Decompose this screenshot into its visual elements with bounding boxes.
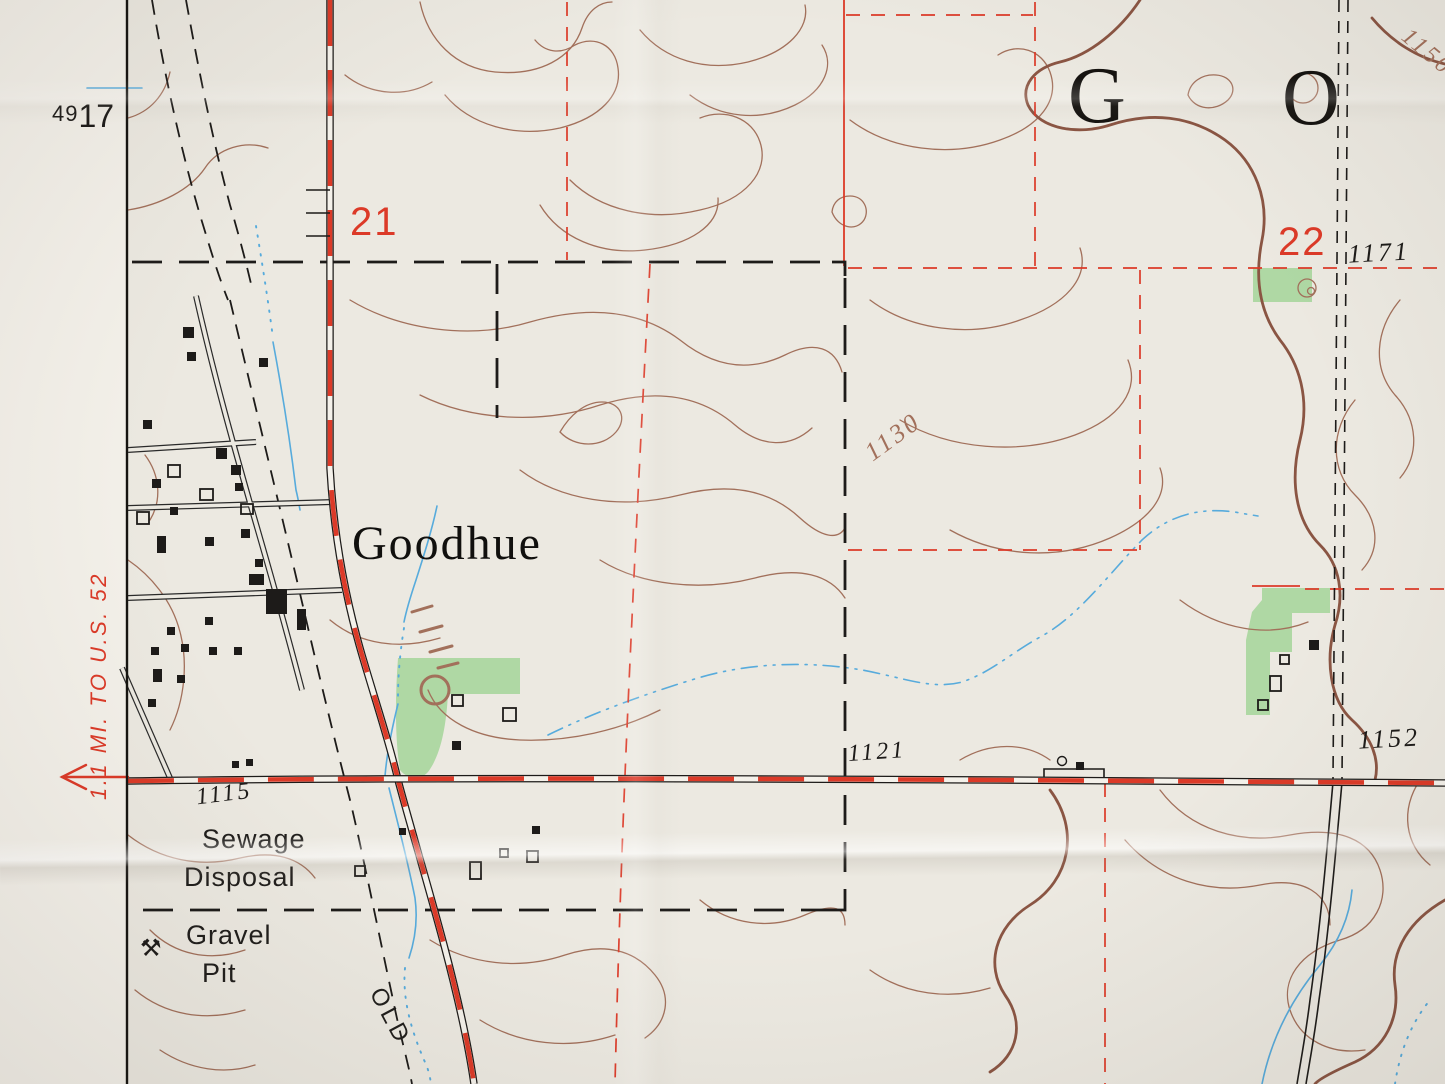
spot-elevation-1121: 1121 — [847, 738, 907, 766]
utm-grid-label: 4917 — [52, 100, 114, 132]
township-letter-g: G — [1068, 56, 1126, 136]
streams — [87, 88, 1430, 1084]
sewage-disposal-label-line2: Disposal — [184, 864, 296, 891]
gravel-pit-label-line1: Gravel — [186, 922, 272, 949]
topo-map-photo: 4917 1.1 MI. TO U.S. 52 21 22 G O Goodhu… — [0, 0, 1445, 1084]
grid-label-large-digits: 17 — [78, 98, 114, 134]
section-boundary-lines — [132, 262, 845, 910]
section-number-22: 22 — [1278, 222, 1327, 262]
unimproved-road — [1297, 0, 1348, 1084]
road-destination-note: 1.1 MI. TO U.S. 52 — [88, 572, 110, 800]
sewage-disposal-label-line1: Sewage — [202, 826, 306, 853]
gravel-pit-label-line2: Pit — [202, 960, 237, 987]
section-number-21: 21 — [350, 202, 399, 242]
spot-elevation-1171: 1171 — [1347, 238, 1410, 267]
spot-elevation-1152: 1152 — [1357, 724, 1420, 753]
grid-label-small-digits: 49 — [52, 101, 78, 126]
town-name-label: Goodhue — [352, 520, 542, 568]
red-survey-lines — [567, 0, 1445, 1084]
gravel-pit-icon: ⚒ — [140, 936, 162, 960]
index-contour-lines — [990, 0, 1445, 1084]
township-letter-o: O — [1282, 58, 1340, 138]
